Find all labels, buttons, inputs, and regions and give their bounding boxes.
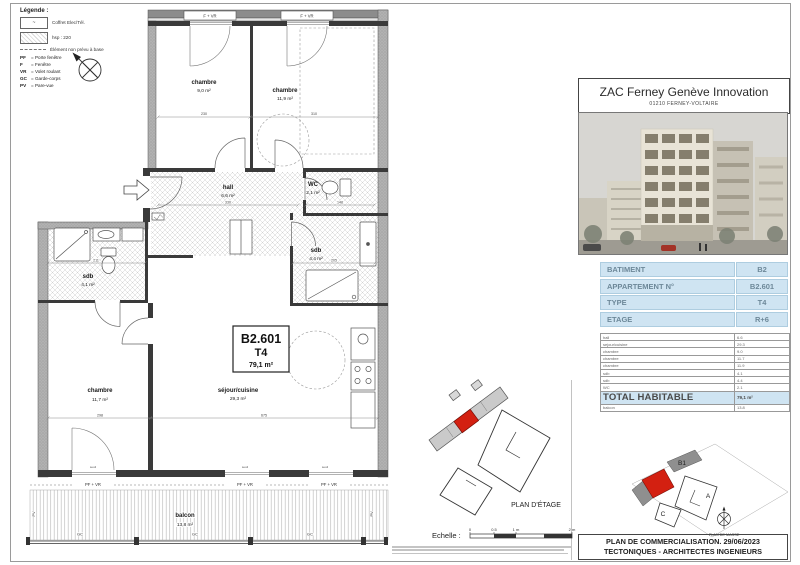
project-title: ZAC Ferney Genève Innovation [579,85,789,99]
room-balcon-area: 13,8 m² [177,522,194,528]
area-value: 13.8 [734,405,789,411]
room-chambre2-area: 11,9 m² [277,96,293,102]
gc-label: GC [192,532,198,537]
footer-box: PLAN DE COMMERCIALISATION. 29/06/2023 TE… [578,534,788,560]
info-value: B2.601 [736,279,788,294]
area-label: chambre [601,363,734,368]
info-value: T4 [736,295,788,310]
panel-title-box: ZAC Ferney Genève Innovation 01210 FERNE… [578,78,790,114]
area-value: 29.3 [734,341,789,347]
room-chambre1-name: chambre [191,80,217,86]
info-value: B2 [736,262,788,277]
area-label: sdb [601,371,734,376]
room-hall-name: hall [223,185,234,191]
dim-330: 330 [225,200,231,204]
info-row: ETAGE R+6 [600,312,788,327]
scale-bar-label: Echelle : [432,531,461,540]
footer-line1: PLAN DE COMMERCIALISATION. 29/06/2023 [579,538,787,547]
area-row: sdb4.1 [601,370,789,377]
area-label: balcon [601,405,734,410]
floor-key-title: PLAN D'ÉTAGE [511,500,561,509]
total-label: TOTAL HABITABLE [601,392,734,403]
room-chambre2-name: chambre [272,88,298,94]
apartment-area: 79,1 m² [249,362,274,369]
apartment-number: B2.601 [241,332,281,346]
info-label: APPARTEMENT N° [600,279,735,294]
fine-print [392,546,574,556]
window-label-pf-vr: PF + VR [321,482,337,487]
entry-arrow-icon [124,180,149,200]
area-row: WC2.1 [601,384,789,391]
area-value: 4.4 [734,377,789,383]
room-chambre3-area: 11,7 m² [92,397,108,403]
pv-label: PV [369,511,374,517]
room-hall-area: 6,6 m² [221,193,235,199]
window-label-f-vr: F + VR [203,14,216,19]
area-label: sejour/cuisine [601,342,734,347]
area-row: chambre9.0 [601,348,789,355]
north-compass-icon [73,53,102,82]
dim-230: 230 [201,112,207,116]
building-rendering-art [579,113,787,254]
room-sdb2-area: 4,4 m² [309,256,323,262]
area-row: chambre11.7 [601,356,789,363]
gc-label: GC [307,532,313,537]
info-table: BATIMENT B2 APPARTEMENT N° B2.601 TYPE T… [600,262,788,328]
site-label-c: C [661,511,666,518]
room-sejour-area: 29,3 m² [230,396,247,402]
seuil-label: seuil [322,465,329,469]
dim-148: 148 [337,200,343,204]
scale-bar: 0 0.5 1 m 2 m [468,526,578,544]
gc-label: GC [77,532,83,537]
area-label: sdb [601,378,734,383]
area-row: sejour/cuisine29.3 [601,341,789,348]
room-sejour-name: séjour/cuisine [218,388,259,394]
info-label: TYPE [600,295,735,310]
site-compass-icon [718,507,731,530]
area-table: hall6.6 sejour/cuisine29.3 chambre9.0 ch… [600,333,790,412]
info-value: R+6 [736,312,788,327]
dim-205: 205 [331,258,337,262]
area-row: hall6.6 [601,334,789,341]
total-row: TOTAL HABITABLE79,1 m² [601,392,789,405]
scale-tick-1m: 1 m [513,527,520,532]
info-row: APPARTEMENT N° B2.601 [600,279,788,294]
area-value: 11.9 [734,363,789,369]
plan-sheet: { "legend": { "title": "Légende :", "cof… [0,0,800,565]
area-label: hall [601,335,734,340]
bottom-wall-windows: seuil seuil seuil [38,428,388,477]
room-sdb1-name: sdb [83,274,94,280]
scale-tick-05: 0.5 [491,527,497,532]
dim-298: 298 [97,413,103,417]
building-rendering [578,112,788,255]
room-chambre3-name: chambre [87,388,113,394]
scale-tick-2m: 2 m [569,527,576,532]
dim-310: 310 [311,112,317,116]
area-label: chambre [601,349,734,354]
window-label-pf-vr: PF + VR [237,482,253,487]
pv-label: PV [31,511,36,517]
site-label-a: A [706,493,711,500]
area-row: chambre11.9 [601,363,789,370]
seuil-label: seuil [242,465,249,469]
seuil-label: seuil [90,465,97,469]
info-row: TYPE T4 [600,295,788,310]
area-value: 6.6 [734,334,789,340]
room-sdb2-name: sdb [311,248,322,254]
area-value: 2.1 [734,384,789,390]
balcon-row: balcon13.8 [601,405,789,412]
area-row: sdb4.4 [601,377,789,384]
info-label: BATIMENT [600,262,735,277]
room-sdb1-area: 4,1 m² [81,282,95,288]
total-value: 79,1 m² [734,392,789,404]
area-value: 4.1 [734,370,789,376]
site-map: B1 A C PLAN DE MASSE [620,440,790,540]
area-value: 11.7 [734,356,789,362]
info-label: ETAGE [600,312,735,327]
scale-tick-0: 0 [469,527,472,532]
dim-675: 675 [261,413,267,417]
site-label-b1: B1 [678,460,686,467]
window-label-f-vr: F + VR [300,14,313,19]
apartment-type: T4 [255,347,269,359]
info-row: BATIMENT B2 [600,262,788,277]
area-label: WC [601,385,734,390]
project-subtitle: 01210 FERNEY-VOLTAIRE [579,101,789,107]
room-wc-name: WC [308,182,319,188]
dim-211: 211 [93,258,99,262]
balcony: PF + VR PF + VR PF + VR balcon 13,8 m² G… [26,479,388,545]
footer-line2: TECTONIQUES - ARCHITECTES INGENIEURS [579,548,787,557]
area-label: chambre [601,356,734,361]
room-balcon-name: balcon [175,513,195,519]
room-wc-area: 2,1 m² [306,190,320,196]
apartment-label-box: B2.601 T4 79,1 m² [233,326,289,372]
room-chambre1-area: 9,0 m² [197,88,211,94]
window-label-pf-vr: PF + VR [85,482,101,487]
floor-key-map: PLAN D'ÉTAGE [420,380,575,515]
area-value: 9.0 [734,348,789,354]
